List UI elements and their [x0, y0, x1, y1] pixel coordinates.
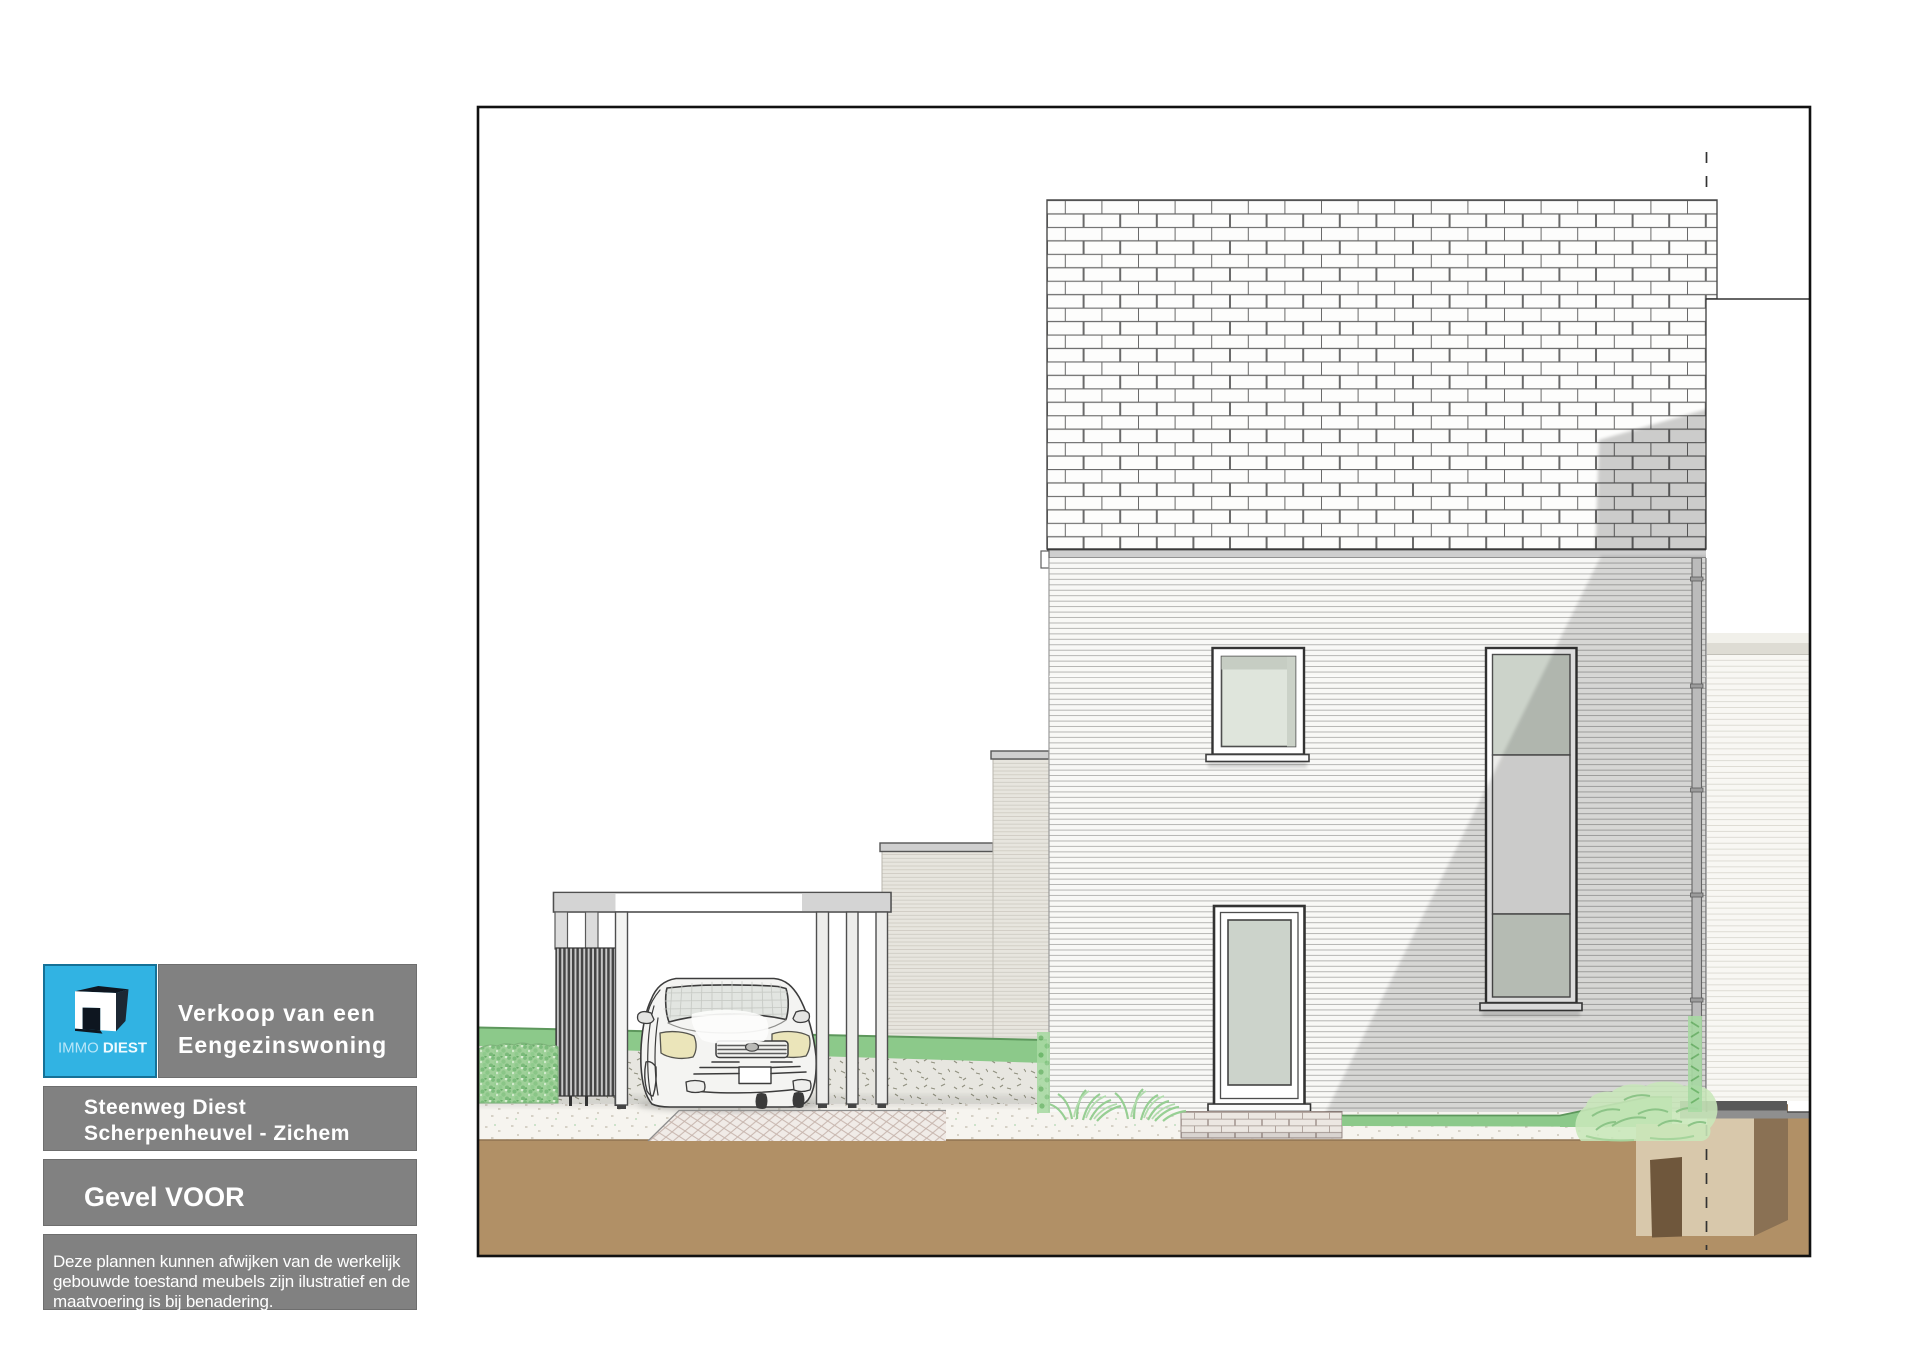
svg-text:IMMODIEST: IMMODIEST	[58, 1040, 147, 1057]
